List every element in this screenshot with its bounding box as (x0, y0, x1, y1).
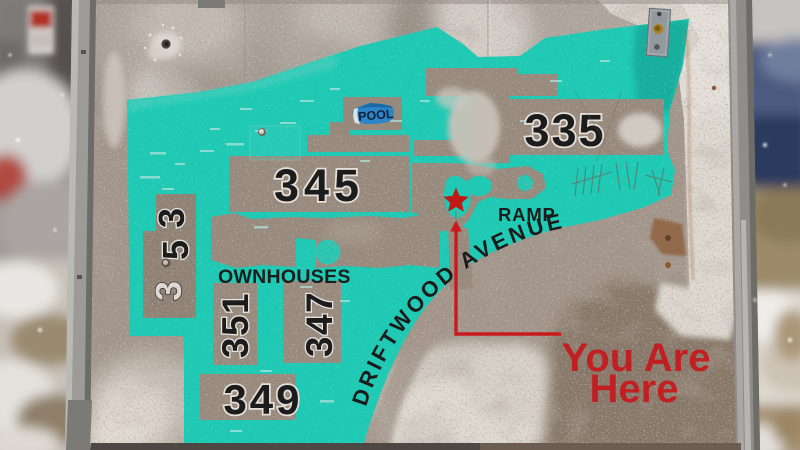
svg-text:349: 349 (223, 376, 302, 423)
svg-text:3: 3 (148, 281, 189, 301)
svg-text:Here: Here (590, 367, 679, 411)
svg-text:347: 347 (299, 291, 340, 357)
svg-text:335: 335 (524, 105, 605, 156)
svg-text:345: 345 (274, 160, 364, 211)
svg-text:OWNHOUSES: OWNHOUSES (218, 266, 351, 288)
svg-text:5: 5 (155, 240, 196, 260)
svg-text:3: 3 (151, 208, 192, 228)
svg-text:351: 351 (215, 292, 256, 358)
